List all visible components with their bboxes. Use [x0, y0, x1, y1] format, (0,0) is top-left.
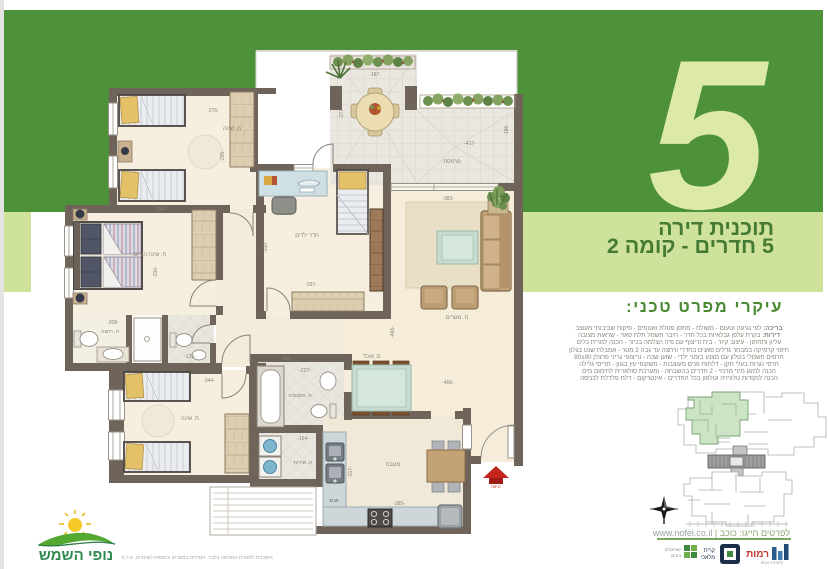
svg-text:ח. שינה הורים: ח. שינה הורים — [134, 252, 167, 258]
svg-text:ח. שירות: ח. שירות — [294, 460, 312, 466]
svg-text:-317-: -317- — [348, 466, 354, 478]
svg-text:חדר ילדים: חדר ילדים — [295, 232, 319, 239]
svg-text:בונים: בונים — [671, 553, 681, 558]
svg-text:קרית: קרית — [704, 548, 715, 554]
svg-text:ס. אוכל: ס. אוכל — [363, 353, 381, 360]
svg-text:-310-: -310- — [263, 241, 269, 253]
svg-text:ח. רחצה: ח. רחצה — [101, 329, 119, 335]
svg-text:-205-: -205- — [220, 150, 226, 162]
svg-text:-466-: -466- — [442, 380, 454, 386]
svg-text:-417-: -417- — [464, 141, 476, 147]
svg-text:כניסה: כניסה — [491, 484, 501, 489]
svg-text:-299-: -299- — [154, 207, 166, 213]
svg-text:מלאכי: מלאכי — [701, 554, 716, 561]
svg-text:רמות: רמות — [746, 549, 769, 560]
svg-text:-276-: -276- — [207, 108, 219, 114]
svg-text:ח. מגורים: ח. מגורים — [446, 315, 469, 321]
svg-text:-135-: -135- — [184, 354, 196, 360]
svg-text:-383-: -383- — [442, 196, 454, 202]
svg-text:-227-: -227- — [299, 368, 311, 374]
svg-text:D.W: D.W — [330, 498, 340, 503]
svg-text:-385-: -385- — [393, 501, 405, 507]
svg-text:ישראלים: ישראלים — [665, 547, 681, 552]
svg-text:-310-: -310- — [153, 266, 159, 278]
svg-text:מטבח: מטבח — [386, 462, 401, 468]
svg-text:-187-: -187- — [369, 72, 381, 78]
svg-text:-344-: -344- — [203, 378, 215, 384]
svg-text:נופי השמש: נופי השמש — [39, 547, 114, 564]
svg-text:-223-: -223- — [281, 356, 292, 361]
svg-text:-186-: -186- — [504, 124, 510, 136]
svg-text:מרפסת: מרפסת — [443, 159, 460, 165]
svg-text:-164-: -164- — [297, 436, 309, 442]
svg-text:REAL ESTATE: REAL ESTATE — [761, 561, 784, 565]
svg-text:ח. אמבטיה: ח. אמבטיה — [288, 393, 311, 399]
svg-text:-277-: -277- — [339, 107, 345, 119]
svg-text:ת. שינה: ת. שינה — [181, 416, 199, 422]
svg-text:-297-: -297- — [305, 282, 317, 288]
svg-text:ת. שינה: ת. שינה — [223, 126, 241, 132]
svg-text:-466-: -466- — [390, 326, 396, 338]
svg-text:-208-: -208- — [107, 320, 119, 326]
